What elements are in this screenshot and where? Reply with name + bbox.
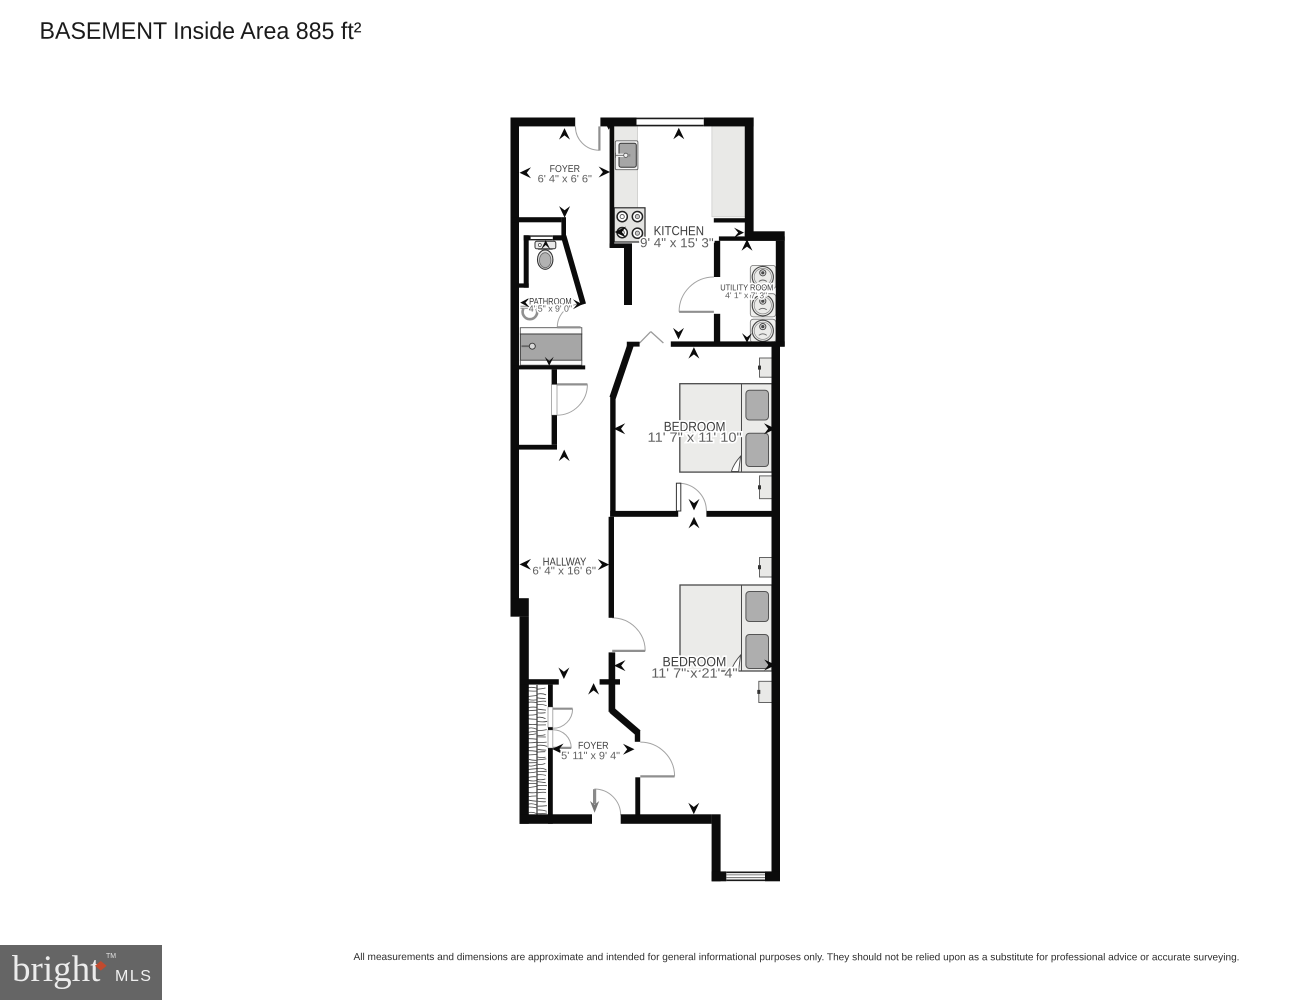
svg-text:All measurements and dimension: All measurements and dimensions are appr…	[353, 952, 1239, 963]
svg-text:11' 7" x 21' 4": 11' 7" x 21' 4"	[651, 666, 737, 681]
svg-text:6' 4" x 16' 6": 6' 4" x 16' 6"	[532, 565, 596, 577]
svg-text:4' 1" x 7' 3": 4' 1" x 7' 3"	[725, 290, 767, 300]
svg-text:5' 11" x 9' 4": 5' 11" x 9' 4"	[561, 750, 620, 762]
svg-text:BASEMENT Inside Area 885 ft²: BASEMENT Inside Area 885 ft²	[39, 18, 361, 45]
svg-text:11' 7" x 11' 10": 11' 7" x 11' 10"	[648, 430, 742, 445]
svg-text:6' 4" x 6' 6": 6' 4" x 6' 6"	[538, 173, 593, 185]
svg-text:9' 4" x 15' 3": 9' 4" x 15' 3"	[640, 235, 714, 250]
svg-text:4' 5" x 9' 0": 4' 5" x 9' 0"	[529, 304, 572, 314]
